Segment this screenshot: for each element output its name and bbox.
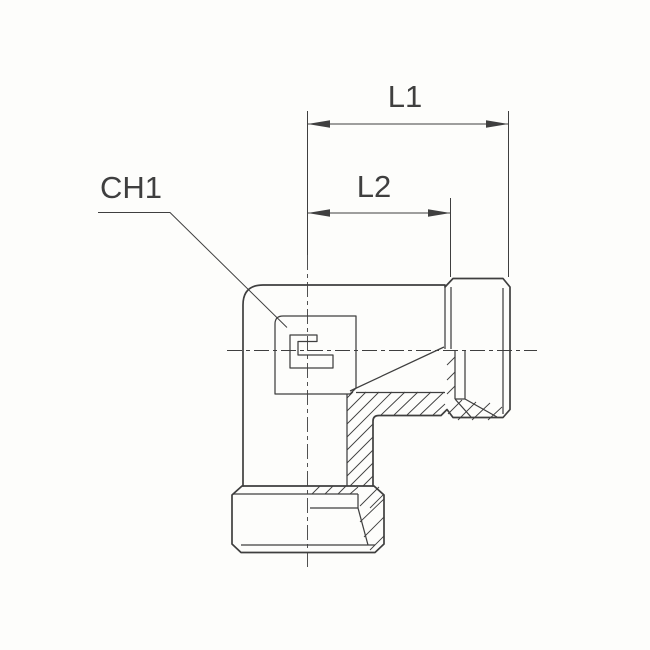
l2-left-arrow: [308, 209, 331, 217]
corner-hatch-lines: [347, 392, 445, 486]
l2-right-arrow: [428, 209, 451, 217]
fitting-outline: [243, 279, 510, 487]
collar-edge-lines: [233, 494, 358, 508]
dimension-l2: L2: [308, 169, 451, 277]
internal-cone-line: [350, 347, 444, 391]
bottom-port-details: [233, 494, 375, 545]
port-cone-lines: [455, 351, 497, 418]
centerlines: [227, 255, 537, 568]
l1-left-arrow: [308, 120, 331, 128]
ch1-leader-line: [98, 213, 287, 328]
elbow-fitting-drawing: L1 L2 CH1: [0, 0, 650, 650]
tube-socket-profile: [290, 335, 333, 368]
l1-right-arrow: [486, 120, 509, 128]
dimension-l1: L1: [308, 79, 509, 277]
section-hatching: [312, 357, 502, 550]
ch1-callout: CH1: [98, 170, 287, 328]
right-port-details: [347, 287, 503, 486]
technical-drawing-canvas: L1 L2 CH1: [0, 0, 650, 650]
l2-label: L2: [357, 169, 391, 204]
bottom-port-hatch-lines: [312, 486, 384, 550]
bottom-cone-line: [358, 508, 368, 545]
l1-label: L1: [388, 79, 422, 114]
ch1-label: CH1: [100, 170, 162, 205]
